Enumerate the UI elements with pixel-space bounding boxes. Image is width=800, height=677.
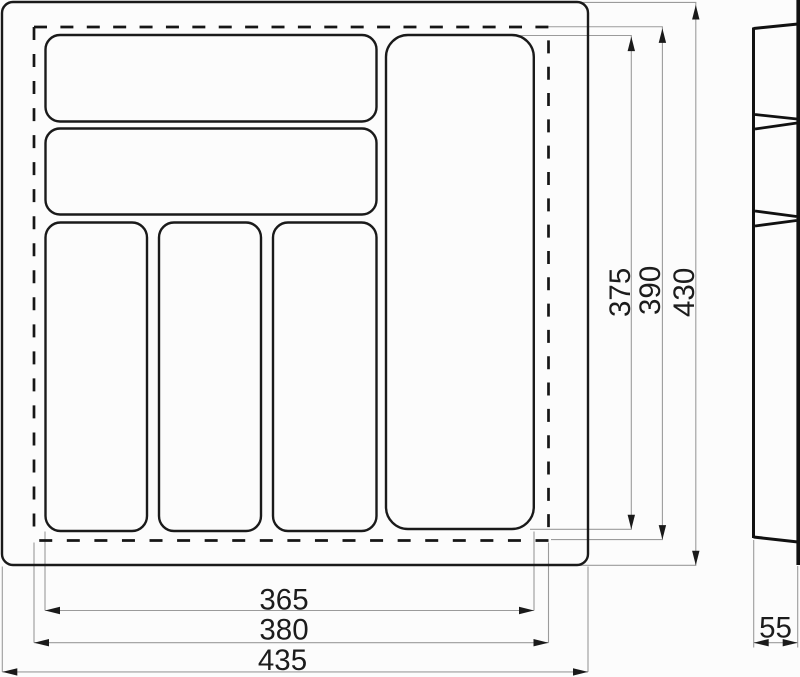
svg-text:390: 390	[634, 266, 667, 315]
svg-text:430: 430	[668, 268, 701, 317]
svg-text:435: 435	[258, 644, 307, 677]
svg-text:365: 365	[259, 584, 308, 617]
svg-text:375: 375	[604, 268, 637, 317]
svg-text:55: 55	[759, 612, 792, 645]
svg-text:380: 380	[259, 614, 308, 647]
